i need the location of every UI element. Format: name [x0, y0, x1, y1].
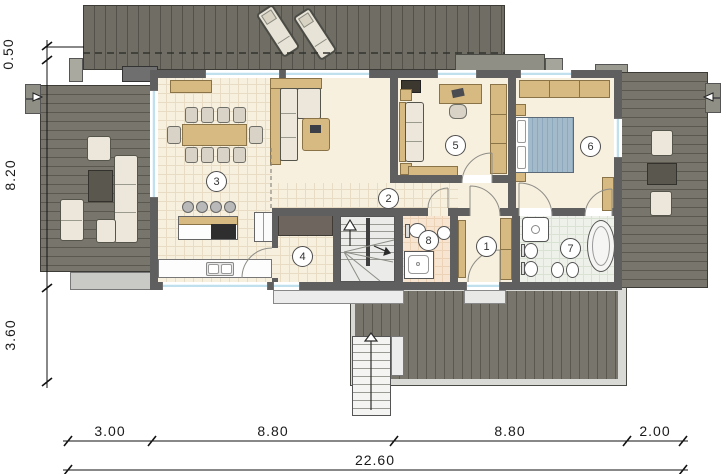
room-number: 8 [425, 235, 431, 247]
room-label-4: 4 [292, 246, 313, 267]
dim-text: 2.00 [639, 423, 670, 439]
dim-left-0: 0.50 [0, 24, 16, 84]
dim-text: 8.80 [494, 423, 525, 439]
bedroom-door [519, 183, 552, 216]
dim-text: 3.60 [2, 319, 18, 350]
dim-text: 22.60 [355, 452, 395, 468]
left-arrow-icon [704, 93, 713, 101]
room-label-8: 8 [418, 230, 439, 251]
dim-bottom-1: 8.80 [243, 423, 303, 439]
dimension-ticks [42, 42, 687, 474]
room-label-3: 3 [206, 171, 227, 192]
room-number: 6 [587, 141, 593, 153]
dimension-lines [47, 40, 688, 470]
stair-arrows [344, 220, 390, 410]
dim-total: 22.60 [345, 452, 405, 468]
up-arrow-icon [365, 333, 377, 341]
dim-left-2: 3.60 [2, 305, 18, 365]
dim-text: 3.00 [94, 423, 125, 439]
dim-text: 8.80 [257, 423, 288, 439]
wc-door [428, 188, 448, 208]
room-number: 7 [567, 243, 573, 255]
entry-hall-door [470, 186, 500, 216]
room-number: 4 [299, 251, 305, 263]
right-arrow-icon [33, 93, 42, 101]
dim-text: 0.50 [0, 38, 16, 69]
annotations-layer [0, 0, 726, 474]
bathroom-door [585, 189, 612, 216]
dim-bottom-3: 2.00 [625, 423, 685, 439]
room-label-5: 5 [445, 135, 466, 156]
dim-bottom-0: 3.00 [80, 423, 140, 439]
room-number: 1 [483, 241, 489, 253]
stair-winders [344, 240, 394, 281]
utility-door [242, 248, 272, 278]
office-door [462, 153, 492, 183]
up-arrow-icon [344, 220, 356, 230]
room-number: 3 [213, 176, 219, 188]
room-label-6: 6 [580, 136, 601, 157]
room-number: 5 [452, 140, 458, 152]
dim-bottom-2: 8.80 [480, 423, 540, 439]
dim-text: 8.20 [2, 159, 18, 190]
room-label-2: 2 [378, 188, 399, 209]
downspout-arrows [33, 93, 713, 101]
floor-plan: 1 2 3 4 5 6 7 8 0.50 8.20 3.60 3.00 8.80… [0, 0, 726, 474]
dim-left-1: 8.20 [2, 145, 18, 205]
room-label-7: 7 [560, 238, 581, 259]
room-number: 2 [385, 193, 391, 205]
room-label-1: 1 [476, 236, 497, 257]
